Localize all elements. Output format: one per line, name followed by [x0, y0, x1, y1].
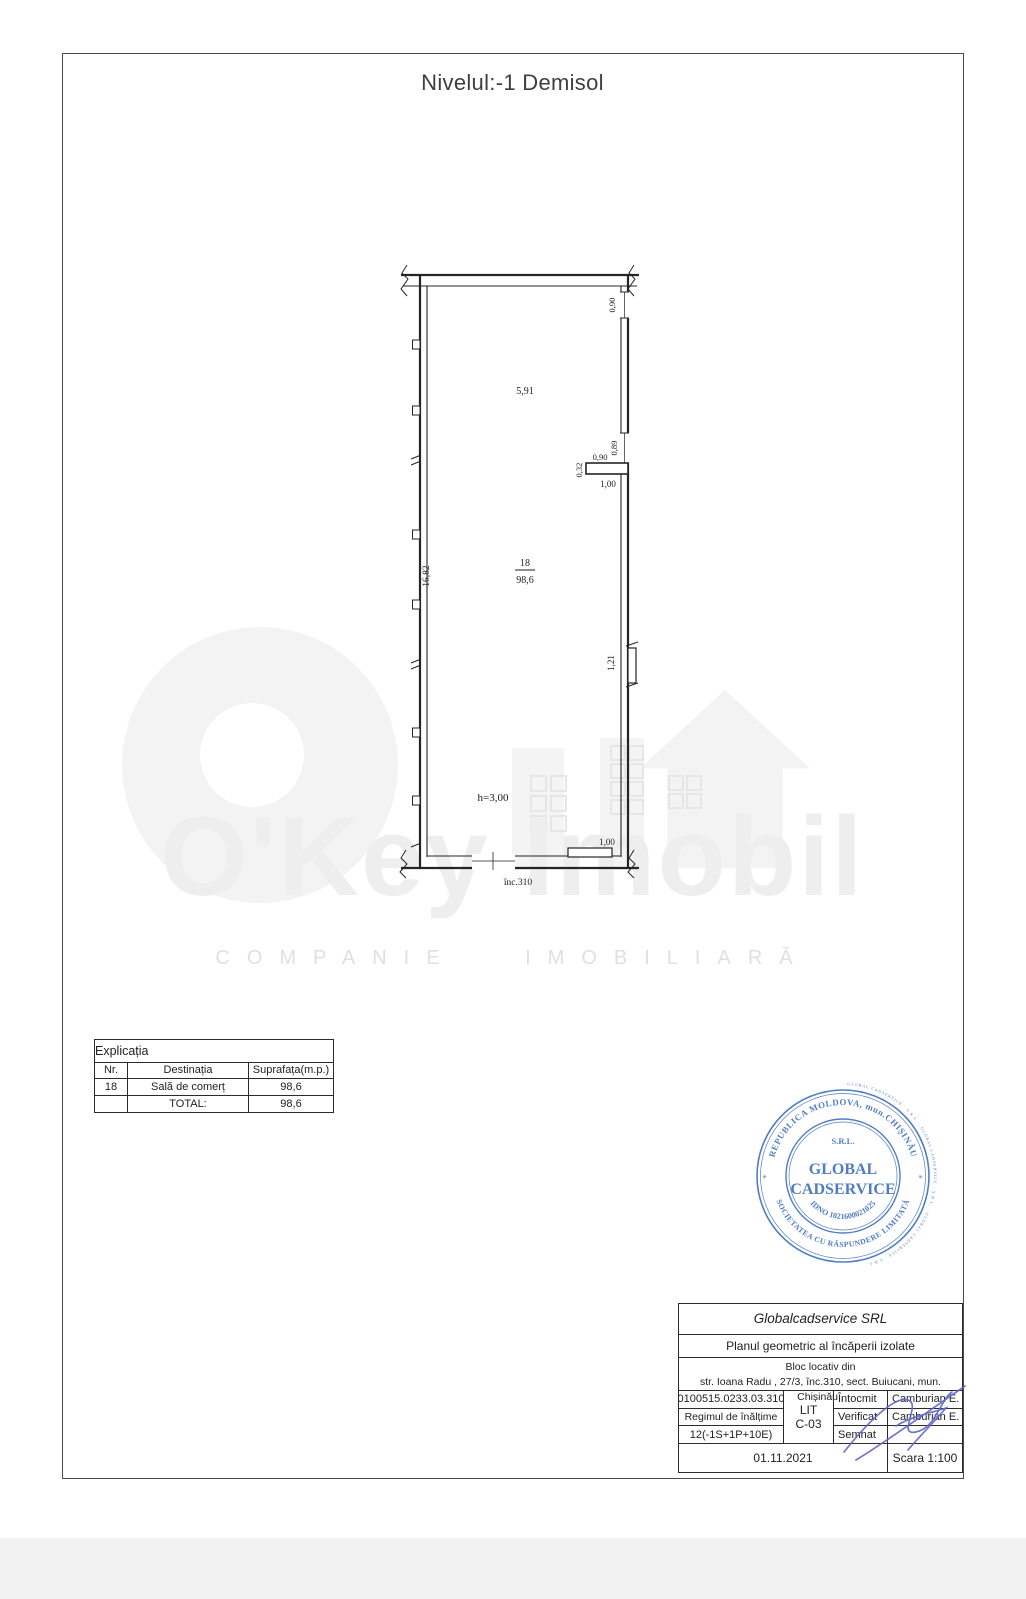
- stamp-star-left: ✳: [762, 1174, 767, 1181]
- stamp-name-line1: GLOBAL: [809, 1161, 877, 1178]
- cadastral-number: 0100515.0233.03.310: [679, 1391, 783, 1408]
- legend-table: Explicația Nr. Destinația Suprafața(m.p.…: [94, 1039, 334, 1113]
- dim-bottom-right-step: 1,00: [599, 837, 615, 847]
- dim-left-height: 16,82: [422, 565, 432, 587]
- stamp-star-right: ✳: [918, 1174, 923, 1181]
- legend-col-nr: Nr.: [95, 1063, 128, 1078]
- watermark-tagline-text: COMPANIE IMOBILIARĂ: [62, 947, 963, 970]
- legend-col-area: Suprafața(m.p.): [249, 1063, 333, 1078]
- door-room-label: înc.310: [503, 878, 532, 888]
- stamp-ring-top-text: REPUBLICA MOLDOVA, mun.CHIȘINĂU: [767, 1097, 920, 1158]
- height-regime-value: 12(-1S+1P+10E): [679, 1425, 783, 1443]
- page-title: Nivelul:-1 Demisol: [62, 70, 963, 96]
- handwritten-signature: [838, 1378, 970, 1470]
- table-row: 18 Sală de comerț 98,6: [95, 1078, 333, 1095]
- svg-text:IDNO 1021600021025: IDNO 1021600021025: [809, 1199, 878, 1221]
- company-round-stamp: · GLOBAL CADSERVICE · S.R.L. · GLOBAL CA…: [748, 1081, 938, 1271]
- lit-label: LIT: [800, 1403, 817, 1417]
- svg-text:SOCIETATEA CU RĂSPUNDERE LIMIT: SOCIETATEA CU RĂSPUNDERE LIMITATĂ: [775, 1198, 912, 1249]
- watermark-window: [686, 775, 702, 791]
- stamp-idno: IDNO 1021600021025: [809, 1199, 878, 1221]
- title-block-company: Globalcadservice SRL: [679, 1304, 962, 1334]
- lit-value: C-03: [795, 1417, 821, 1431]
- room-area: 98,6: [516, 575, 534, 586]
- title-block-doc-type: Planul geometric al încăperii izolate: [679, 1334, 962, 1358]
- cell-dest: TOTAL:: [128, 1096, 249, 1112]
- cell-nr: [95, 1096, 128, 1112]
- ceiling-height-note: h=3,00: [478, 792, 509, 804]
- height-regime-label: Regimul de înălțime: [679, 1408, 783, 1426]
- svg-text:REPUBLICA MOLDOVA, mun.CHIȘINĂ: REPUBLICA MOLDOVA, mun.CHIȘINĂU: [767, 1097, 920, 1158]
- room-number: 18: [520, 558, 530, 569]
- cell-nr: 18: [95, 1079, 128, 1095]
- object-line1: Bloc locativ din: [679, 1360, 962, 1375]
- stamp-name-line2: CADSERVICE: [790, 1181, 895, 1198]
- scanned-document-page: O'Key Imobil COMPANIE IMOBILIARĂ Nivelul…: [0, 0, 1026, 1599]
- watermark-key-hole: [200, 703, 304, 807]
- dim-stub-opening-b: 0,89: [609, 441, 619, 456]
- dim-stub-opening-a: 0,90: [593, 452, 608, 462]
- cell-area: 98,6: [249, 1096, 333, 1112]
- floor-plan: 5,91 0,90 0,89 0,90 0,32 1,00 16,82 18 9…: [393, 258, 643, 898]
- dim-stub-length: 1,00: [600, 479, 616, 489]
- table-row: TOTAL: 98,6: [95, 1095, 333, 1112]
- dim-right-pilaster: 1,21: [606, 655, 616, 671]
- legend-title: Explicația: [95, 1040, 333, 1062]
- stamp-ring-bottom-text: SOCIETATEA CU RĂSPUNDERE LIMITATĂ: [775, 1198, 912, 1249]
- scan-bottom-strip: [0, 1538, 1026, 1599]
- watermark-window: [668, 775, 684, 791]
- lit-cell: LIT C-03: [784, 1391, 834, 1443]
- legend-col-dest: Destinația: [128, 1063, 249, 1078]
- stamp-srl: S.R.L.: [832, 1136, 855, 1146]
- cell-dest: Sală de comerț: [128, 1079, 249, 1095]
- legend-header-row: Nr. Destinația Suprafața(m.p.): [95, 1062, 333, 1078]
- cell-area: 98,6: [249, 1079, 333, 1095]
- dim-stub-thickness: 0,32: [574, 463, 584, 478]
- dim-upper-width: 5,91: [516, 386, 534, 397]
- dim-top-right-opening: 0,90: [607, 298, 617, 313]
